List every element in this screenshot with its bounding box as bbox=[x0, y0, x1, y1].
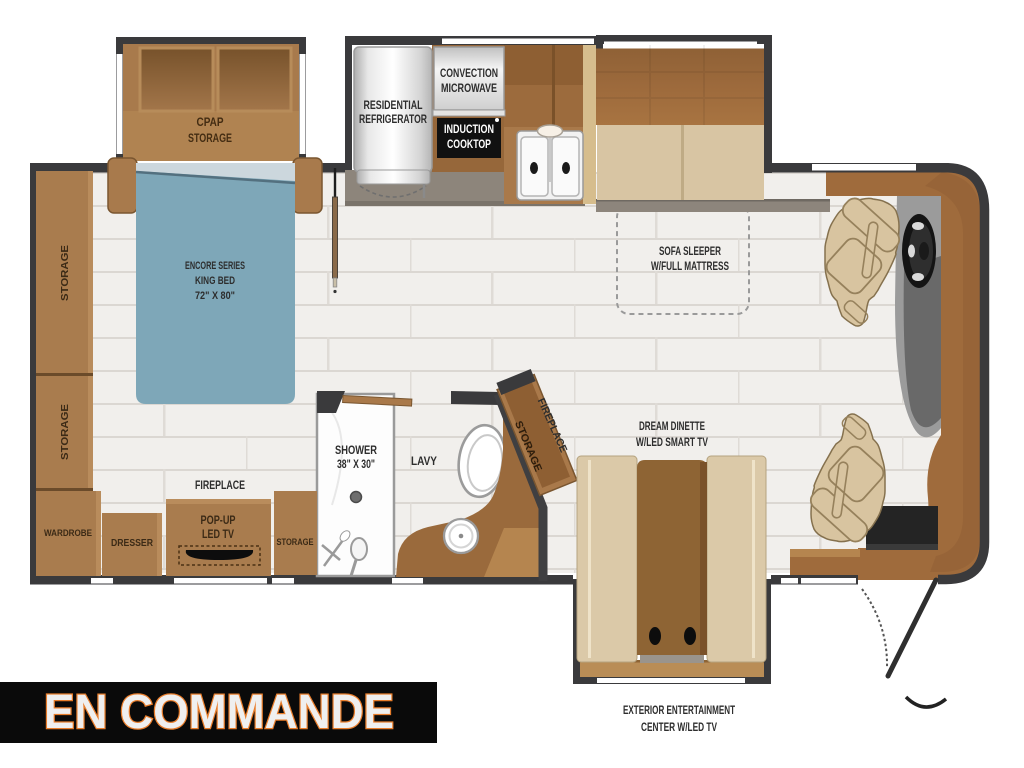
svg-text:FIREPLACE: FIREPLACE bbox=[195, 480, 245, 492]
svg-text:EN COMMANDE: EN COMMANDE bbox=[44, 686, 394, 739]
svg-text:REFRIGERATOR: REFRIGERATOR bbox=[359, 114, 428, 126]
svg-text:CPAP: CPAP bbox=[197, 117, 224, 129]
svg-text:W/FULL MATTRESS: W/FULL MATTRESS bbox=[651, 261, 729, 273]
svg-text:KING BED: KING BED bbox=[195, 275, 235, 287]
svg-text:ENCORE SERIES: ENCORE SERIES bbox=[185, 260, 245, 272]
svg-text:DREAM DINETTE: DREAM DINETTE bbox=[639, 421, 705, 433]
svg-text:MICROWAVE: MICROWAVE bbox=[441, 83, 497, 95]
svg-text:38" X 30": 38" X 30" bbox=[337, 459, 375, 471]
svg-text:STORAGE: STORAGE bbox=[188, 133, 232, 145]
svg-text:SOFA SLEEPER: SOFA SLEEPER bbox=[659, 246, 721, 258]
svg-text:LED TV: LED TV bbox=[202, 529, 234, 541]
svg-text:STORAGE: STORAGE bbox=[59, 404, 71, 460]
svg-text:INDUCTION: INDUCTION bbox=[444, 124, 494, 136]
svg-text:EXTERIOR ENTERTAINMENT: EXTERIOR ENTERTAINMENT bbox=[623, 705, 735, 717]
svg-text:LAVY: LAVY bbox=[411, 456, 437, 468]
svg-text:CONVECTION: CONVECTION bbox=[440, 68, 498, 80]
svg-text:DRESSER: DRESSER bbox=[111, 537, 153, 549]
svg-text:CENTER W/LED TV: CENTER W/LED TV bbox=[641, 722, 717, 734]
svg-text:WARDROBE: WARDROBE bbox=[44, 528, 92, 539]
svg-text:72" X 80": 72" X 80" bbox=[195, 290, 235, 302]
svg-text:STORAGE: STORAGE bbox=[277, 537, 314, 548]
svg-text:POP-UP: POP-UP bbox=[201, 515, 236, 527]
svg-text:SHOWER: SHOWER bbox=[335, 445, 378, 457]
svg-text:COOKTOP: COOKTOP bbox=[447, 139, 491, 151]
svg-text:W/LED SMART TV: W/LED SMART TV bbox=[636, 437, 708, 449]
svg-text:RESIDENTIAL: RESIDENTIAL bbox=[364, 100, 423, 112]
svg-text:STORAGE: STORAGE bbox=[59, 245, 71, 301]
